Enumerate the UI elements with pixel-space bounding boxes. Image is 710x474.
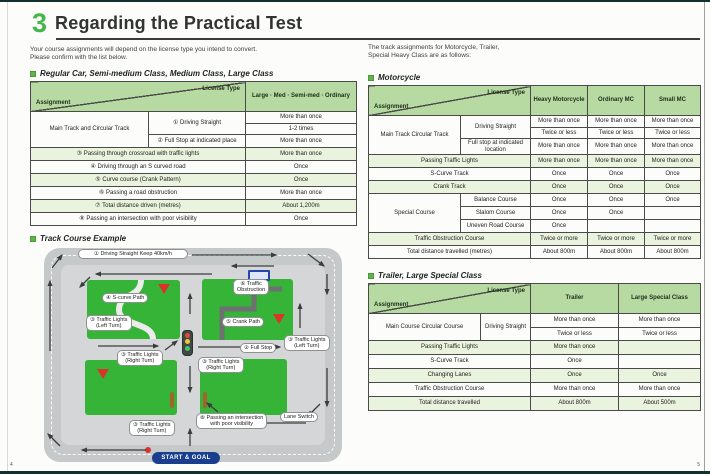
intro-text-left: Your course assignments will depend on t…	[30, 46, 360, 61]
assignment-label: Assignment	[374, 302, 408, 309]
column-header-cell: Large · Med · Semi-med · Ordinary	[246, 82, 357, 112]
table-row: S-Curve Track Once	[369, 355, 701, 369]
value-cell: More than once	[531, 383, 619, 397]
value-bottom: Twice or less	[588, 127, 644, 138]
value-cell: About 800m	[588, 246, 645, 259]
assignment-cell: Traffic Obstruction Course	[369, 383, 531, 397]
label-traffic-lights-left-turn: ③ Traffic Lights (Left Turn)	[86, 315, 132, 331]
table-row: Main Course Circular Course Driving Stra…	[369, 314, 701, 341]
table-header-row: License Type Assignment Large · Med · Se…	[31, 82, 357, 112]
value-cell: More than once	[588, 139, 645, 155]
value-cell: Once	[531, 220, 588, 233]
value-cell: More than once 1-2 times	[246, 112, 357, 135]
booklet-page-spread: 3 Regarding the Practical Test Your cour…	[0, 0, 710, 474]
value-cell: About 500m	[619, 397, 701, 411]
value-cell	[645, 207, 701, 220]
value-cell: Once	[645, 181, 701, 194]
value-cell: More than once Twice or less	[645, 116, 701, 139]
value-bottom: Twice or less	[619, 327, 700, 340]
value-cell: Once	[588, 181, 645, 194]
page-title: Regarding the Practical Test	[55, 10, 302, 36]
license-type-label: License Type	[487, 90, 525, 97]
value-cell	[645, 220, 701, 233]
value-cell: Once	[531, 207, 588, 220]
assignment-cell: ⑤ Curve course (Crank Pattern)	[31, 174, 246, 187]
value-cell: Twice or more	[531, 233, 588, 246]
value-cell: Once	[619, 369, 701, 383]
value-cell: Once	[588, 207, 645, 220]
value-bottom: Twice or less	[531, 127, 587, 138]
value-cell: Once	[531, 355, 619, 369]
value-cell: Once	[645, 194, 701, 207]
value-bottom: 1-2 times	[246, 123, 356, 134]
label-traffic-lights-right-turn: ③ Traffic Lights (Right Turn)	[117, 350, 163, 366]
assignment-cell: Driving Straight	[481, 314, 531, 341]
intro-line: Please confirm with the list below.	[30, 54, 127, 61]
intro-line: Special Heavy Class are as follows:	[368, 52, 471, 59]
value-cell: Once	[588, 194, 645, 207]
table-row: Changing Lanes Once Once	[369, 369, 701, 383]
value-cell: Once	[531, 194, 588, 207]
section-heading-trailer: Trailer, Large Special Class	[368, 271, 700, 280]
corner-header-cell: License Type Assignment	[369, 284, 531, 314]
value-cell: More than once	[246, 187, 357, 200]
page-number-right: 5	[697, 462, 700, 468]
intro-text-right: The track assignments for Motorcycle, Tr…	[368, 44, 700, 59]
assignment-cell: ⑧ Passing an intersection with poor visi…	[31, 213, 246, 226]
table-header-row: License Type Assignment Heavy Motorcycle…	[369, 86, 701, 116]
value-cell: Once	[531, 168, 588, 181]
corner-header-cell: License Type Assignment	[31, 82, 246, 112]
value-cell: About 800m	[645, 246, 701, 259]
assignment-cell: S-Curve Track	[369, 355, 531, 369]
table-row: Traffic Obstruction Course More than onc…	[369, 383, 701, 397]
value-cell: More than once Twice or less	[588, 116, 645, 139]
assignment-cell: Crank Track	[369, 181, 531, 194]
value-cell: More than once	[645, 139, 701, 155]
group-cell: Main Track Circular Track	[369, 116, 461, 155]
left-page-edge	[7, 2, 8, 471]
value-cell: More than once Twice or less	[531, 116, 588, 139]
value-cell: Once	[246, 161, 357, 174]
section-heading-motorcycle: Motorcycle	[368, 73, 700, 82]
assignment-cell: Driving Straight	[461, 116, 531, 139]
corner-header-cell: License Type Assignment	[369, 86, 531, 116]
assignment-label: Assignment	[36, 100, 70, 107]
section-heading-label: Track Course Example	[40, 234, 126, 243]
value-cell: More than once	[246, 135, 357, 148]
label-driving-straight: ① Driving Straight Keep 40km/h	[78, 249, 188, 259]
assignment-cell: ⑥ Passing a road obstruction	[31, 187, 246, 200]
value-bottom: Twice or less	[531, 327, 618, 340]
label-traffic-lights-left-turn: ③ Traffic Lights (Left Turn)	[284, 335, 330, 351]
title-underline	[56, 38, 700, 40]
value-cell	[619, 355, 701, 369]
column-header-cell: Small MC	[645, 86, 701, 116]
column-header-cell: Trailer	[531, 284, 619, 314]
label-full-stop: ② Full Stop	[240, 343, 276, 353]
table-row: Passing Traffic Lights More than once	[369, 341, 701, 355]
table-row: Special Course Balance Course Once Once …	[369, 194, 701, 207]
table-row: Passing Traffic Lights More than once Mo…	[369, 155, 701, 168]
value-cell: About 800m	[531, 246, 588, 259]
start-goal-badge: START & GOAL	[152, 452, 220, 464]
label-poor-visibility: ⑧ Passing an intersection with poor visi…	[196, 413, 267, 429]
license-type-label: License Type	[487, 288, 525, 295]
assignment-label: Assignment	[374, 104, 408, 111]
label-crank-path: ⑤ Crank Path	[222, 317, 264, 327]
assignment-cell: Slalom Course	[461, 207, 531, 220]
direction-arrows	[30, 246, 362, 468]
value-cell: Once	[588, 168, 645, 181]
section-heading-label: Motorcycle	[378, 73, 420, 82]
value-cell: Once	[246, 174, 357, 187]
value-cell	[588, 220, 645, 233]
assignment-cell: ② Full Stop at indicated place	[149, 135, 246, 148]
label-traffic-obstruction: ⑥ Traffic Obstruction	[233, 279, 269, 295]
table-row: S-Curve Track Once Once Once	[369, 168, 701, 181]
value-cell: More than once	[588, 155, 645, 168]
assignment-cell: S-Curve Track	[369, 168, 531, 181]
value-top: More than once	[619, 314, 700, 327]
column-header-cell: Heavy Motorcycle	[531, 86, 588, 116]
assignment-cell: ④ Driving through an S curved road	[31, 161, 246, 174]
value-bottom: Twice or less	[645, 127, 700, 138]
value-cell	[619, 341, 701, 355]
section-heading-label: Trailer, Large Special Class	[378, 271, 482, 280]
table-row: ⑦ Total distance driven (metres) About 1…	[31, 200, 357, 213]
label-s-curve-path: ④ S-curve Path	[102, 293, 148, 303]
page-header: 3 Regarding the Practical Test	[32, 10, 302, 36]
label-lane-switch: Lane Switch	[280, 412, 318, 422]
value-cell: More than once	[645, 155, 701, 168]
table-row: Main Track Circular Track Driving Straig…	[369, 116, 701, 139]
section-bullet-icon	[30, 236, 36, 242]
right-page-edge	[704, 2, 705, 471]
column-header-cell: Large Special Class	[619, 284, 701, 314]
table-row: Total distance travelled (metres) About …	[369, 246, 701, 259]
page-number-left: 4	[10, 462, 13, 468]
section-heading-course: Track Course Example	[30, 234, 360, 243]
assignment-cell: Balance Course	[461, 194, 531, 207]
assignment-cell: Changing Lanes	[369, 369, 531, 383]
assignment-cell: Passing Traffic Lights	[369, 155, 531, 168]
table-row: Crank Track Once Once Once	[369, 181, 701, 194]
assignment-cell: ③ Passing through crossroad with traffic…	[31, 148, 246, 161]
value-cell: Once	[531, 369, 619, 383]
table-row: Main Track and Circular Track ① Driving …	[31, 112, 357, 135]
track-course-diagram: ① Driving Straight Keep 40km/h ④ S-curve…	[30, 246, 362, 468]
value-top: More than once	[531, 116, 587, 127]
value-cell: Once	[531, 181, 588, 194]
value-cell: More than once	[531, 139, 588, 155]
value-cell: Once	[645, 168, 701, 181]
assignment-cell: Total distance travelled	[369, 397, 531, 411]
right-column: The track assignments for Motorcycle, Tr…	[368, 44, 700, 411]
table-row: ④ Driving through an S curved road Once	[31, 161, 357, 174]
value-cell: About 1,200m	[246, 200, 357, 213]
table-header-row: License Type Assignment Trailer Large Sp…	[369, 284, 701, 314]
value-cell: Twice or more	[645, 233, 701, 246]
section-bullet-icon	[368, 75, 374, 81]
value-top: More than once	[588, 116, 644, 127]
section-number: 3	[32, 10, 47, 36]
table-row: ⑧ Passing an intersection with poor visi…	[31, 213, 357, 226]
intro-line: Your course assignments will depend on t…	[30, 46, 257, 53]
group-cell: Main Course Circular Course	[369, 314, 481, 341]
left-column: Your course assignments will depend on t…	[30, 46, 360, 468]
value-cell: More than once Twice or less	[619, 314, 701, 341]
intro-line: The track assignments for Motorcycle, Tr…	[368, 44, 499, 51]
value-cell: More than once	[246, 148, 357, 161]
assignment-cell: ① Driving Straight	[149, 112, 246, 135]
assignment-cell: Total distance travelled (metres)	[369, 246, 531, 259]
group-cell: Special Course	[369, 194, 461, 233]
assignment-cell: Traffic Obstruction Course	[369, 233, 531, 246]
assignment-cell: Full stop at indicated location	[461, 139, 531, 155]
value-cell: Once	[246, 213, 357, 226]
value-cell: Twice or more	[588, 233, 645, 246]
label-traffic-lights-right-turn: ③ Traffic Lights (Right Turn)	[198, 357, 244, 373]
column-header-cell: Ordinary MC	[588, 86, 645, 116]
license-type-label: License Type	[202, 86, 240, 93]
section-bullet-icon	[368, 273, 374, 279]
value-cell: More than once	[619, 383, 701, 397]
table-row: ⑤ Curve course (Crank Pattern) Once	[31, 174, 357, 187]
motorcycle-table: License Type Assignment Heavy Motorcycle…	[368, 85, 701, 259]
section-heading-label: Regular Car, Semi-medium Class, Medium C…	[40, 69, 273, 78]
value-top: More than once	[645, 116, 700, 127]
group-cell: Main Track and Circular Track	[31, 112, 149, 148]
section-bullet-icon	[30, 71, 36, 77]
trailer-table: License Type Assignment Trailer Large Sp…	[368, 283, 701, 411]
section-heading-regular: Regular Car, Semi-medium Class, Medium C…	[30, 69, 360, 78]
table-row: Total distance travelled About 800m Abou…	[369, 397, 701, 411]
assignment-cell: Uneven Road Course	[461, 220, 531, 233]
value-cell: More than once	[531, 155, 588, 168]
value-cell: More than once	[531, 341, 619, 355]
table-row: Traffic Obstruction Course Twice or more…	[369, 233, 701, 246]
value-cell: About 800m	[531, 397, 619, 411]
value-cell: More than once Twice or less	[531, 314, 619, 341]
value-top: More than once	[246, 112, 356, 123]
label-traffic-lights-right-turn: ③ Traffic Lights (Right Turn)	[129, 420, 175, 436]
assignment-cell: ⑦ Total distance driven (metres)	[31, 200, 246, 213]
table-row: ③ Passing through crossroad with traffic…	[31, 148, 357, 161]
regular-class-table: License Type Assignment Large · Med · Se…	[30, 81, 357, 226]
table-row: ⑥ Passing a road obstruction More than o…	[31, 187, 357, 200]
value-top: More than once	[531, 314, 618, 327]
assignment-cell: Passing Traffic Lights	[369, 341, 531, 355]
